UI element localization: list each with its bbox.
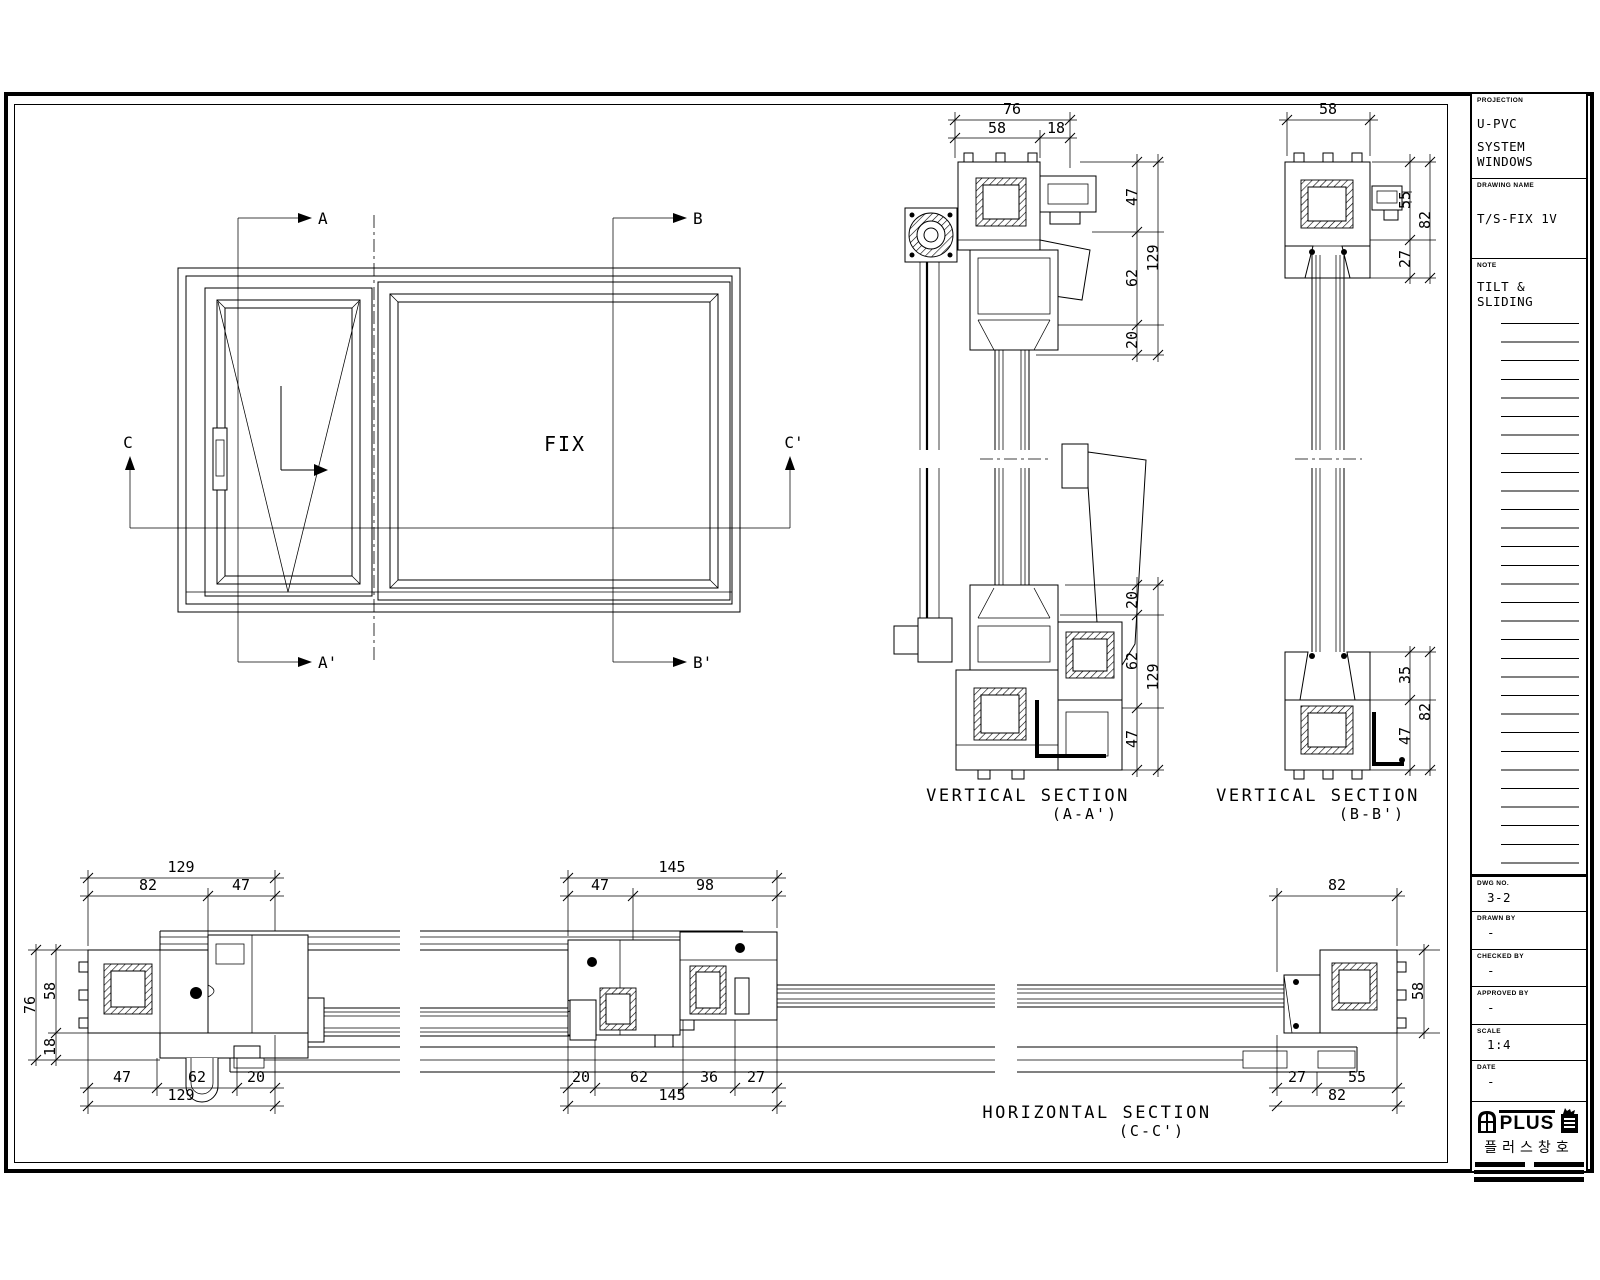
logo-plus-text: PLUS: [1499, 1110, 1556, 1134]
dim-label: 20: [1123, 591, 1141, 609]
checked-by-label: CHECKED BY: [1477, 953, 1581, 960]
glazing-fix: [749, 985, 1288, 1007]
scale-label: SCALE: [1477, 1028, 1581, 1035]
dim-label: 18: [41, 1038, 59, 1056]
marker-a-prime-label: A': [318, 653, 337, 672]
dim-label: 82: [139, 876, 157, 894]
section-cc-subtitle: (C-C'): [1119, 1122, 1185, 1140]
date-label: DATE: [1477, 1064, 1581, 1071]
dim-label: 20: [572, 1068, 590, 1086]
date-value: -: [1477, 1074, 1581, 1089]
projection-value-line2: SYSTEM WINDOWS: [1477, 139, 1581, 169]
approved-by-value: -: [1477, 1000, 1581, 1015]
dim-label: 55: [1396, 191, 1414, 209]
title-block-scale: SCALE 1:4: [1472, 1025, 1586, 1061]
vertical-section-aa: 76 58 18 47 62 20 129: [894, 100, 1164, 823]
note-ruled-lines: [1501, 323, 1579, 875]
dim-label: 62: [1123, 269, 1141, 287]
title-block-projection: PROJECTION U-PVC SYSTEM WINDOWS: [1472, 94, 1586, 179]
dims-bb-right-bottom: 35 47 82: [1370, 646, 1436, 776]
dim-label: 47: [1123, 730, 1141, 748]
title-block-checked-by: CHECKED BY -: [1472, 950, 1586, 987]
dim-label: 82: [1328, 876, 1346, 894]
dims-cc-mid-top: 145 47 98: [560, 858, 786, 940]
dim-label: 47: [113, 1068, 131, 1086]
dim-label: 98: [696, 876, 714, 894]
projection-label: PROJECTION: [1477, 97, 1581, 104]
approved-by-label: APPROVED BY: [1477, 990, 1581, 997]
document-logo-icon: [1557, 1108, 1581, 1134]
title-block-note: NOTE TILT & SLIDING: [1472, 259, 1586, 875]
dim-label: 47: [1396, 727, 1414, 745]
dim-label: 20: [1123, 331, 1141, 349]
tilt-direction-arrow: [281, 386, 328, 476]
dim-label: 58: [1319, 100, 1337, 118]
dim-label: 18: [1047, 119, 1065, 137]
dims-cc-left-top: 129 82 47: [80, 858, 284, 946]
dims-bb-top: 58: [1279, 100, 1378, 156]
vertical-section-bb: 58 55 27 82 35: [1216, 100, 1436, 823]
glazing-sliding: [324, 1008, 570, 1036]
cad-drawing: FIX A A' B B': [0, 0, 1450, 1280]
logo-bars-split: [1472, 1162, 1586, 1167]
dim-label: 76: [21, 996, 39, 1014]
title-block-dwg-no: DWG NO. 3-2: [1472, 875, 1586, 912]
dim-label: 36: [700, 1068, 718, 1086]
dim-label: 58: [41, 982, 59, 1000]
dim-label: 58: [988, 119, 1006, 137]
dim-label: 76: [1003, 100, 1021, 118]
section-bb-title: VERTICAL SECTION: [1216, 786, 1420, 806]
dims-aa-top: 76 58 18: [948, 100, 1077, 168]
dim-label: 27: [1288, 1068, 1306, 1086]
dim-label: 82: [1416, 703, 1434, 721]
title-block-drawing-name: DRAWING NAME T/S-FIX 1V: [1472, 179, 1586, 259]
dim-label: 47: [1123, 188, 1141, 206]
dim-label: 35: [1396, 666, 1414, 684]
drawing-name-value: T/S-FIX 1V: [1477, 211, 1581, 226]
dim-label: 47: [591, 876, 609, 894]
horizontal-section-cc: 129 82 47 58 18 76: [21, 858, 1440, 1140]
dim-label: 62: [1123, 652, 1141, 670]
right-frame-jamb: [1284, 950, 1406, 1033]
fix-panel-label: FIX: [544, 432, 586, 456]
section-aa-title: VERTICAL SECTION: [926, 786, 1130, 806]
drawn-by-label: DRAWN BY: [1477, 915, 1581, 922]
dim-label: 47: [232, 876, 250, 894]
marker-a-label: A: [318, 209, 328, 228]
section-marker-b: B B': [613, 209, 712, 672]
glazing-bb: [1295, 249, 1362, 659]
dim-label: 129: [1144, 663, 1162, 690]
dim-label: 27: [1396, 250, 1414, 268]
marker-c-prime-label: C': [784, 433, 803, 452]
dim-label: 129: [167, 1086, 194, 1104]
dims-cc-right-bottom: 27 55 82: [1269, 1033, 1405, 1114]
title-block-drawn-by: DRAWN BY -: [1472, 912, 1586, 950]
section-aa-subtitle: (A-A'): [1052, 805, 1118, 823]
drawn-by-value: -: [1477, 925, 1581, 940]
dim-label: 129: [167, 858, 194, 876]
note-label: NOTE: [1477, 262, 1581, 269]
section-marker-a: A A': [238, 209, 337, 672]
dims-bb-right-top: 55 27 82: [1370, 154, 1436, 284]
marker-b-label: B: [693, 209, 703, 228]
logo-bar-2: [1474, 1177, 1584, 1182]
dim-label: 27: [747, 1068, 765, 1086]
dwg-no-label: DWG NO.: [1477, 880, 1581, 887]
drawing-name-label: DRAWING NAME: [1477, 182, 1581, 189]
title-block: PROJECTION U-PVC SYSTEM WINDOWS DRAWING …: [1470, 92, 1588, 1173]
drawing-sheet: FIX A A' B B': [0, 0, 1600, 1280]
dim-label: 20: [247, 1068, 265, 1086]
scale-value: 1:4: [1477, 1037, 1581, 1052]
dim-label: 145: [658, 858, 685, 876]
dim-label: 129: [1144, 244, 1162, 271]
dim-label: 62: [630, 1068, 648, 1086]
marker-c-label: C: [123, 433, 133, 452]
dims-cc-right-side: 58: [1397, 944, 1440, 1039]
interlock-stiles: [568, 932, 777, 1047]
section-bb-subtitle: (B-B'): [1339, 805, 1405, 823]
note-value: TILT & SLIDING: [1477, 279, 1581, 309]
dwg-no-value: 3-2: [1477, 890, 1581, 905]
logo-korean-text: 플러스창호: [1472, 1137, 1586, 1157]
dim-label: 145: [658, 1086, 685, 1104]
dim-label: 58: [1409, 982, 1427, 1000]
dim-label: 82: [1416, 211, 1434, 229]
checked-by-value: -: [1477, 963, 1581, 978]
logo-bar-1: [1474, 1170, 1584, 1174]
window-logo-icon: [1477, 1110, 1497, 1134]
projection-value-line1: U-PVC: [1477, 116, 1581, 131]
dim-label: 82: [1328, 1086, 1346, 1104]
elevation-view: FIX A A' B B': [123, 209, 803, 672]
dim-label: 55: [1348, 1068, 1366, 1086]
window-handle: [213, 428, 227, 490]
section-cc-title: HORIZONTAL SECTION: [982, 1103, 1211, 1123]
marker-b-prime-label: B': [693, 653, 712, 672]
tilt-roller-mechanism: [905, 208, 957, 262]
title-block-date: DATE -: [1472, 1061, 1586, 1102]
title-block-approved-by: APPROVED BY -: [1472, 987, 1586, 1025]
dim-label: 62: [188, 1068, 206, 1086]
glazing-aa: [980, 350, 1048, 585]
company-logo: PLUS 플러스창호: [1472, 1102, 1586, 1181]
